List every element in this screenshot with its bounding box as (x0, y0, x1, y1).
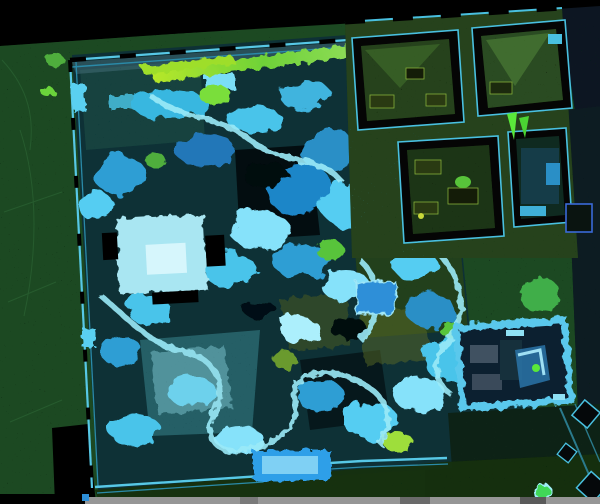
pavement-segment (240, 497, 258, 504)
rock (230, 210, 290, 250)
tree-canopy (520, 277, 560, 313)
plant (455, 176, 471, 188)
pavilion-roof-core (145, 243, 187, 275)
black-void-bottom-left (0, 494, 85, 504)
furniture (406, 68, 424, 79)
annex-square (566, 204, 592, 232)
shrub (145, 152, 165, 168)
rock-shadow (244, 300, 276, 320)
furniture (520, 206, 546, 216)
rock (100, 334, 140, 366)
room-hall-east (508, 128, 572, 227)
wall-block (548, 34, 562, 44)
southeast-room (456, 320, 571, 408)
pavement-segment (520, 497, 546, 504)
boat-pavilion-roof (262, 456, 318, 474)
pond-surface (150, 346, 232, 415)
room-nw (352, 30, 464, 130)
rock (94, 155, 146, 195)
moss (41, 87, 55, 97)
moss (46, 53, 64, 67)
bright-dot (418, 213, 424, 219)
pavilion-shadow (152, 290, 199, 304)
furniture (490, 82, 512, 94)
rock (280, 316, 320, 344)
pavilion-shadow (102, 232, 118, 260)
wall-block (553, 394, 565, 400)
garden-kiosk (356, 282, 396, 314)
rock (109, 414, 161, 446)
pointcloud-viewport[interactable] (0, 0, 600, 504)
shrub (316, 240, 344, 260)
rock (279, 80, 331, 110)
rock (296, 379, 344, 411)
shrub (273, 351, 297, 369)
wall-block (506, 330, 524, 336)
rock-shadow (243, 161, 287, 189)
building-complex (345, 8, 592, 258)
rock (175, 133, 235, 167)
shrub (199, 85, 231, 105)
furniture (414, 202, 438, 214)
rock (77, 191, 113, 219)
pavement-segment (400, 497, 430, 504)
west-gate (72, 84, 85, 111)
west-gate (82, 328, 95, 347)
green-dot (532, 364, 540, 372)
furniture (415, 160, 441, 174)
furniture (426, 94, 446, 106)
room-hall (398, 136, 504, 243)
furniture (370, 95, 394, 108)
blue-chip (82, 494, 89, 501)
furniture (472, 374, 502, 390)
pavilion-shadow (205, 235, 226, 267)
furniture (546, 163, 560, 185)
pointcloud-render (0, 0, 600, 504)
furniture (448, 188, 478, 204)
furniture (470, 345, 498, 363)
